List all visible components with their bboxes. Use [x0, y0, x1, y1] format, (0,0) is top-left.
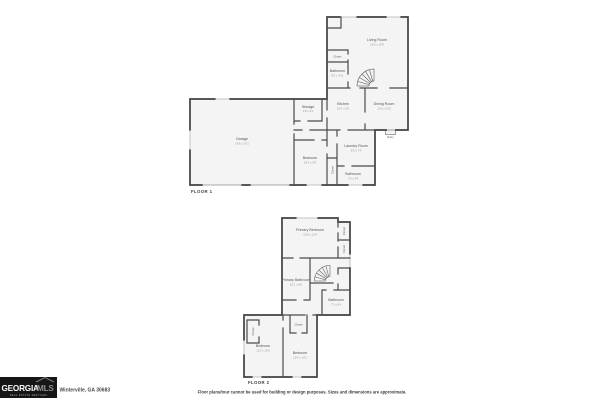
georgia-mls-logo: GEORGIA MLS REAL ESTATE SERVICES	[0, 377, 57, 398]
room-label-primary-bathroom: Primary Bathroom	[282, 278, 311, 282]
room-label-closet-right-1: Closet	[342, 227, 346, 235]
room-dims-kitchen: 10'0 x 9'2	[337, 107, 350, 111]
room-label-bathroom-f2: Bathroom	[328, 298, 344, 302]
address-text: Winterville, GA 30683	[60, 388, 111, 394]
disclaimer-text: Floor plans/tour cannot be used for buil…	[198, 390, 407, 395]
logo-text-mls: MLS	[37, 384, 54, 393]
logo-text-georgia: GEORGIA	[2, 384, 40, 393]
room-label-laundry-room: Laundry Room	[344, 144, 368, 148]
room-label-primary-bedroom: Primary Bedroom	[296, 228, 324, 232]
room-dims-living-room: 16'5 x 15'9	[370, 43, 384, 47]
floor1-title: FLOOR 1	[191, 189, 213, 194]
room-dims-storage: 4'8 x 3'2	[303, 109, 314, 113]
room-dims-bedroom-right: 12'4 x 10'2	[293, 356, 307, 360]
room-label-living-room: Living Room	[367, 38, 387, 42]
room-dims-garage: 19'5 x 20'1	[235, 142, 249, 146]
floor2-plan: Primary Bedroom 15'8 x 12'4 Closet Close…	[244, 218, 350, 385]
room-label-bedroom-f1: Bedroom	[303, 156, 318, 160]
room-dims-laundry-room: 8'6 x 7'4	[351, 149, 362, 153]
footer-bar: GEORGIA MLS REAL ESTATE SERVICES Winterv…	[0, 377, 406, 398]
floor2-title: FLOOR 2	[248, 380, 270, 385]
room-label-bathroom-lower: Bathroom	[345, 172, 361, 176]
room-label-closet-right-2: Closet	[342, 245, 346, 253]
room-dims-bedroom-f1: 10'4 x 9'8	[304, 161, 317, 165]
room-dims-bathroom-upper: 8'2 x 4'11	[332, 74, 344, 78]
room-label-entry: Entry	[387, 135, 394, 139]
floorplan-svg: Living Room 16'5 x 15'9 Closet Bathroom …	[0, 0, 600, 400]
room-dims-primary-bathroom: 10'2 x 8'6	[290, 283, 303, 287]
room-dims-bathroom-f2: 7'2 x 6'4	[331, 303, 342, 307]
floorplan-canvas: Living Room 16'5 x 15'9 Closet Bathroom …	[0, 0, 600, 400]
floor1-plan: Living Room 16'5 x 15'9 Closet Bathroom …	[190, 17, 408, 194]
room-label-kitchen: Kitchen	[337, 102, 349, 106]
room-label-closet-left: Closet	[251, 327, 255, 335]
entry-stoop	[386, 130, 396, 135]
room-label-bedroom-right: Bedroom	[293, 351, 308, 355]
room-dims-bedroom-left: 11'3 x 10'6	[256, 349, 270, 353]
room-label-closet-upper: Closet	[334, 55, 342, 59]
room-label-bedroom-left: Bedroom	[256, 344, 271, 348]
room-dims-dining-room: 11'6 x 9'10	[377, 107, 391, 111]
room-label-dining-room: Dining Room	[374, 102, 395, 106]
room-dims-bathroom-lower: 7'6 x 4'8	[348, 177, 359, 181]
room-label-bathroom-upper: Bathroom	[330, 69, 346, 73]
room-label-garage: Garage	[236, 137, 248, 141]
logo-tagline: REAL ESTATE SERVICES	[10, 394, 47, 397]
room-label-closet-hall: Closet	[295, 323, 303, 327]
room-label-closet-lower: Closet	[331, 166, 335, 174]
room-dims-primary-bedroom: 15'8 x 12'4	[303, 233, 317, 237]
